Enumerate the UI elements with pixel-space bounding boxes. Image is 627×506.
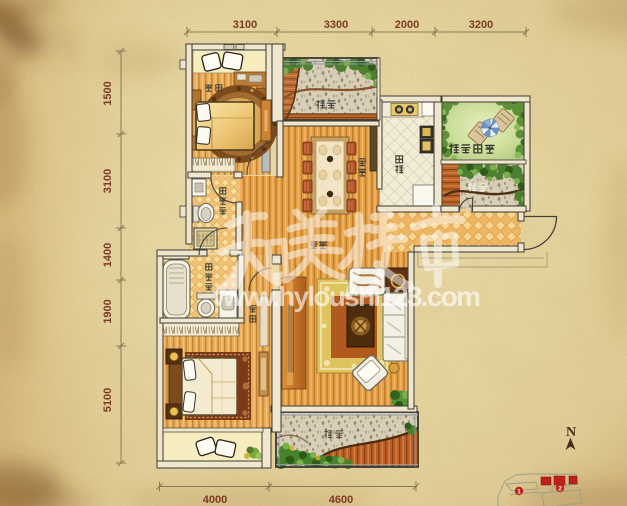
svg-text:2000: 2000 <box>395 19 419 31</box>
svg-text:2: 2 <box>558 486 562 493</box>
svg-text:www.hyloushi123.com: www.hyloushi123.com <box>212 281 481 312</box>
svg-text:3100: 3100 <box>102 169 114 193</box>
svg-text:1: 1 <box>517 489 521 496</box>
svg-text:4000: 4000 <box>203 494 227 506</box>
svg-text:4600: 4600 <box>329 494 353 506</box>
svg-text:1500: 1500 <box>102 81 114 105</box>
svg-text:3300: 3300 <box>324 19 348 31</box>
svg-text:5100: 5100 <box>102 388 114 412</box>
svg-text:3100: 3100 <box>233 19 257 31</box>
svg-text:3200: 3200 <box>469 19 493 31</box>
svg-text:1900: 1900 <box>102 299 114 323</box>
svg-text:1400: 1400 <box>102 243 114 267</box>
svg-text:N: N <box>566 425 576 440</box>
